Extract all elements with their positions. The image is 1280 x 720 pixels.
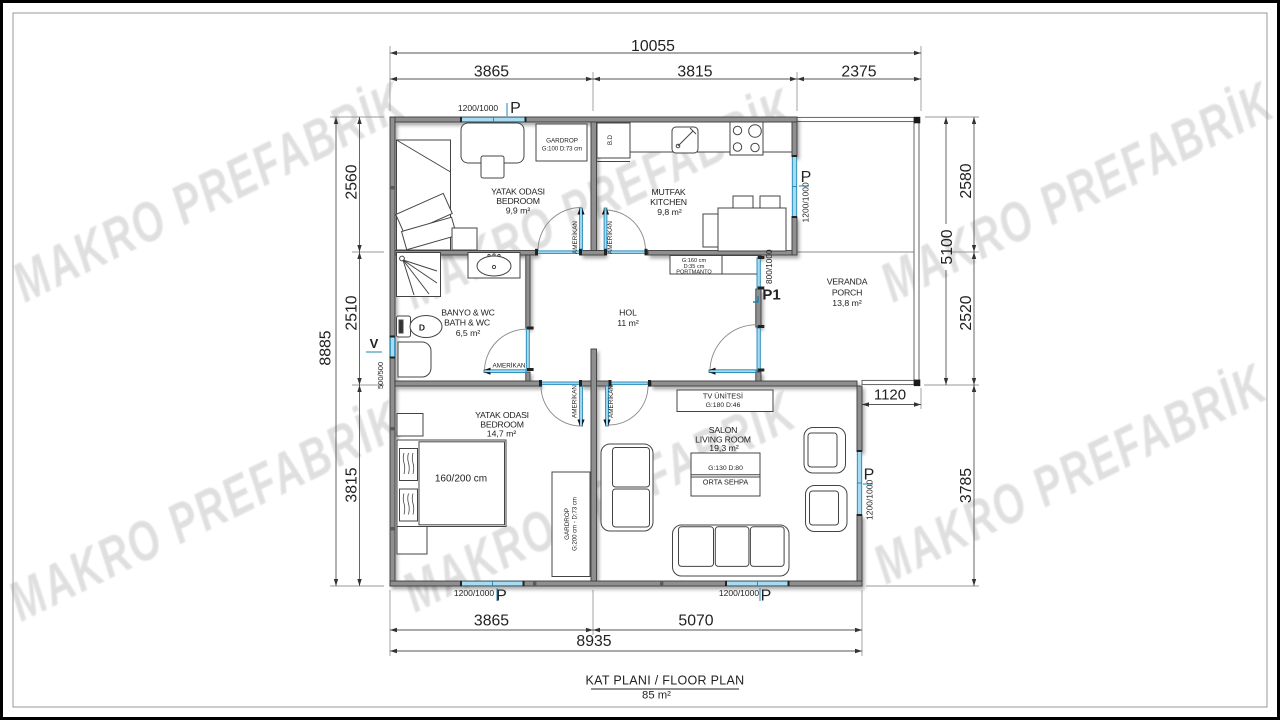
- svg-text:2375: 2375: [841, 64, 876, 81]
- svg-text:B.D: B.D: [608, 134, 614, 145]
- svg-text:1200/1000: 1200/1000: [865, 480, 875, 520]
- svg-text:160/200 cm: 160/200 cm: [435, 474, 487, 485]
- svg-text:P: P: [761, 588, 772, 605]
- svg-text:5100: 5100: [939, 229, 956, 264]
- svg-text:G:180 D:46: G:180 D:46: [706, 402, 741, 409]
- svg-text:2520: 2520: [958, 295, 975, 330]
- svg-text:1200/1000: 1200/1000: [458, 103, 498, 113]
- svg-text:AMERİKAN: AMERİKAN: [570, 385, 579, 418]
- svg-text:8885: 8885: [318, 330, 335, 365]
- svg-text:1200/1000: 1200/1000: [454, 588, 494, 598]
- svg-text:ORTA SEHPA: ORTA SEHPA: [703, 478, 749, 487]
- svg-text:3815: 3815: [344, 467, 361, 502]
- svg-text:11 m²: 11 m²: [617, 318, 639, 328]
- svg-text:1200/1000: 1200/1000: [719, 588, 759, 598]
- svg-text:8935: 8935: [576, 633, 611, 650]
- svg-text:85 m²: 85 m²: [642, 690, 671, 702]
- svg-text:AMERİKAN: AMERİKAN: [605, 221, 614, 254]
- svg-text:P: P: [510, 100, 521, 117]
- svg-text:14,7 m²: 14,7 m²: [487, 429, 517, 439]
- svg-text:3865: 3865: [474, 64, 509, 81]
- svg-text:GARDROP: GARDROP: [546, 138, 578, 145]
- svg-text:BEDROOM: BEDROOM: [496, 196, 540, 206]
- svg-text:G:130 D:80: G:130 D:80: [708, 465, 743, 472]
- svg-text:V: V: [370, 336, 379, 351]
- svg-text:19,3 m²: 19,3 m²: [709, 443, 739, 453]
- svg-text:10055: 10055: [631, 38, 675, 55]
- svg-text:2560: 2560: [344, 164, 361, 199]
- svg-text:P1: P1: [762, 287, 780, 304]
- svg-text:6,5 m²: 6,5 m²: [456, 328, 481, 338]
- svg-text:D: D: [419, 323, 425, 333]
- svg-text:2580: 2580: [958, 163, 975, 198]
- svg-text:KAT PLANI / FLOOR PLAN: KAT PLANI / FLOOR PLAN: [586, 674, 745, 688]
- svg-text:3815: 3815: [677, 64, 712, 81]
- svg-text:5070: 5070: [678, 613, 713, 630]
- svg-text:AMERİKAN: AMERİKAN: [570, 221, 579, 254]
- svg-text:SALON: SALON: [709, 425, 737, 435]
- svg-text:G:200 cm - D:73 cm: G:200 cm - D:73 cm: [573, 497, 579, 551]
- svg-text:YATAK ODASI: YATAK ODASI: [475, 410, 529, 420]
- svg-text:TV ÜNİTESİ: TV ÜNİTESİ: [703, 392, 743, 401]
- svg-text:13,8 m²: 13,8 m²: [832, 298, 862, 308]
- svg-text:3865: 3865: [474, 613, 509, 630]
- svg-text:3785: 3785: [958, 468, 975, 503]
- svg-text:1120: 1120: [874, 387, 906, 404]
- svg-text:YATAK ODASI: YATAK ODASI: [491, 187, 545, 197]
- svg-text:BANYO & WC: BANYO & WC: [441, 308, 495, 318]
- svg-text:800/1000: 800/1000: [764, 249, 774, 284]
- svg-text:9,9 m²: 9,9 m²: [506, 206, 531, 216]
- svg-text:P: P: [496, 588, 507, 605]
- svg-text:2510: 2510: [344, 295, 361, 330]
- svg-text:VERANDA: VERANDA: [827, 277, 868, 287]
- svg-text:GARDROP: GARDROP: [564, 508, 571, 540]
- svg-text:G:100 D:73 cm: G:100 D:73 cm: [542, 147, 582, 153]
- svg-text:AMERİKAN: AMERİKAN: [606, 385, 615, 418]
- svg-text:500/500: 500/500: [376, 362, 385, 389]
- svg-text:1200/1000: 1200/1000: [801, 182, 811, 222]
- svg-text:AMERİKAN: AMERİKAN: [493, 361, 526, 370]
- svg-text:9,8 m²: 9,8 m²: [657, 207, 682, 217]
- svg-text:BATH & WC: BATH & WC: [444, 318, 490, 328]
- svg-text:MUTFAK: MUTFAK: [651, 187, 685, 197]
- svg-text:KITCHEN: KITCHEN: [650, 197, 687, 207]
- svg-text:PORTMANTO: PORTMANTO: [676, 270, 712, 276]
- svg-text:PORCH: PORCH: [832, 288, 862, 298]
- svg-text:HOL: HOL: [619, 308, 637, 318]
